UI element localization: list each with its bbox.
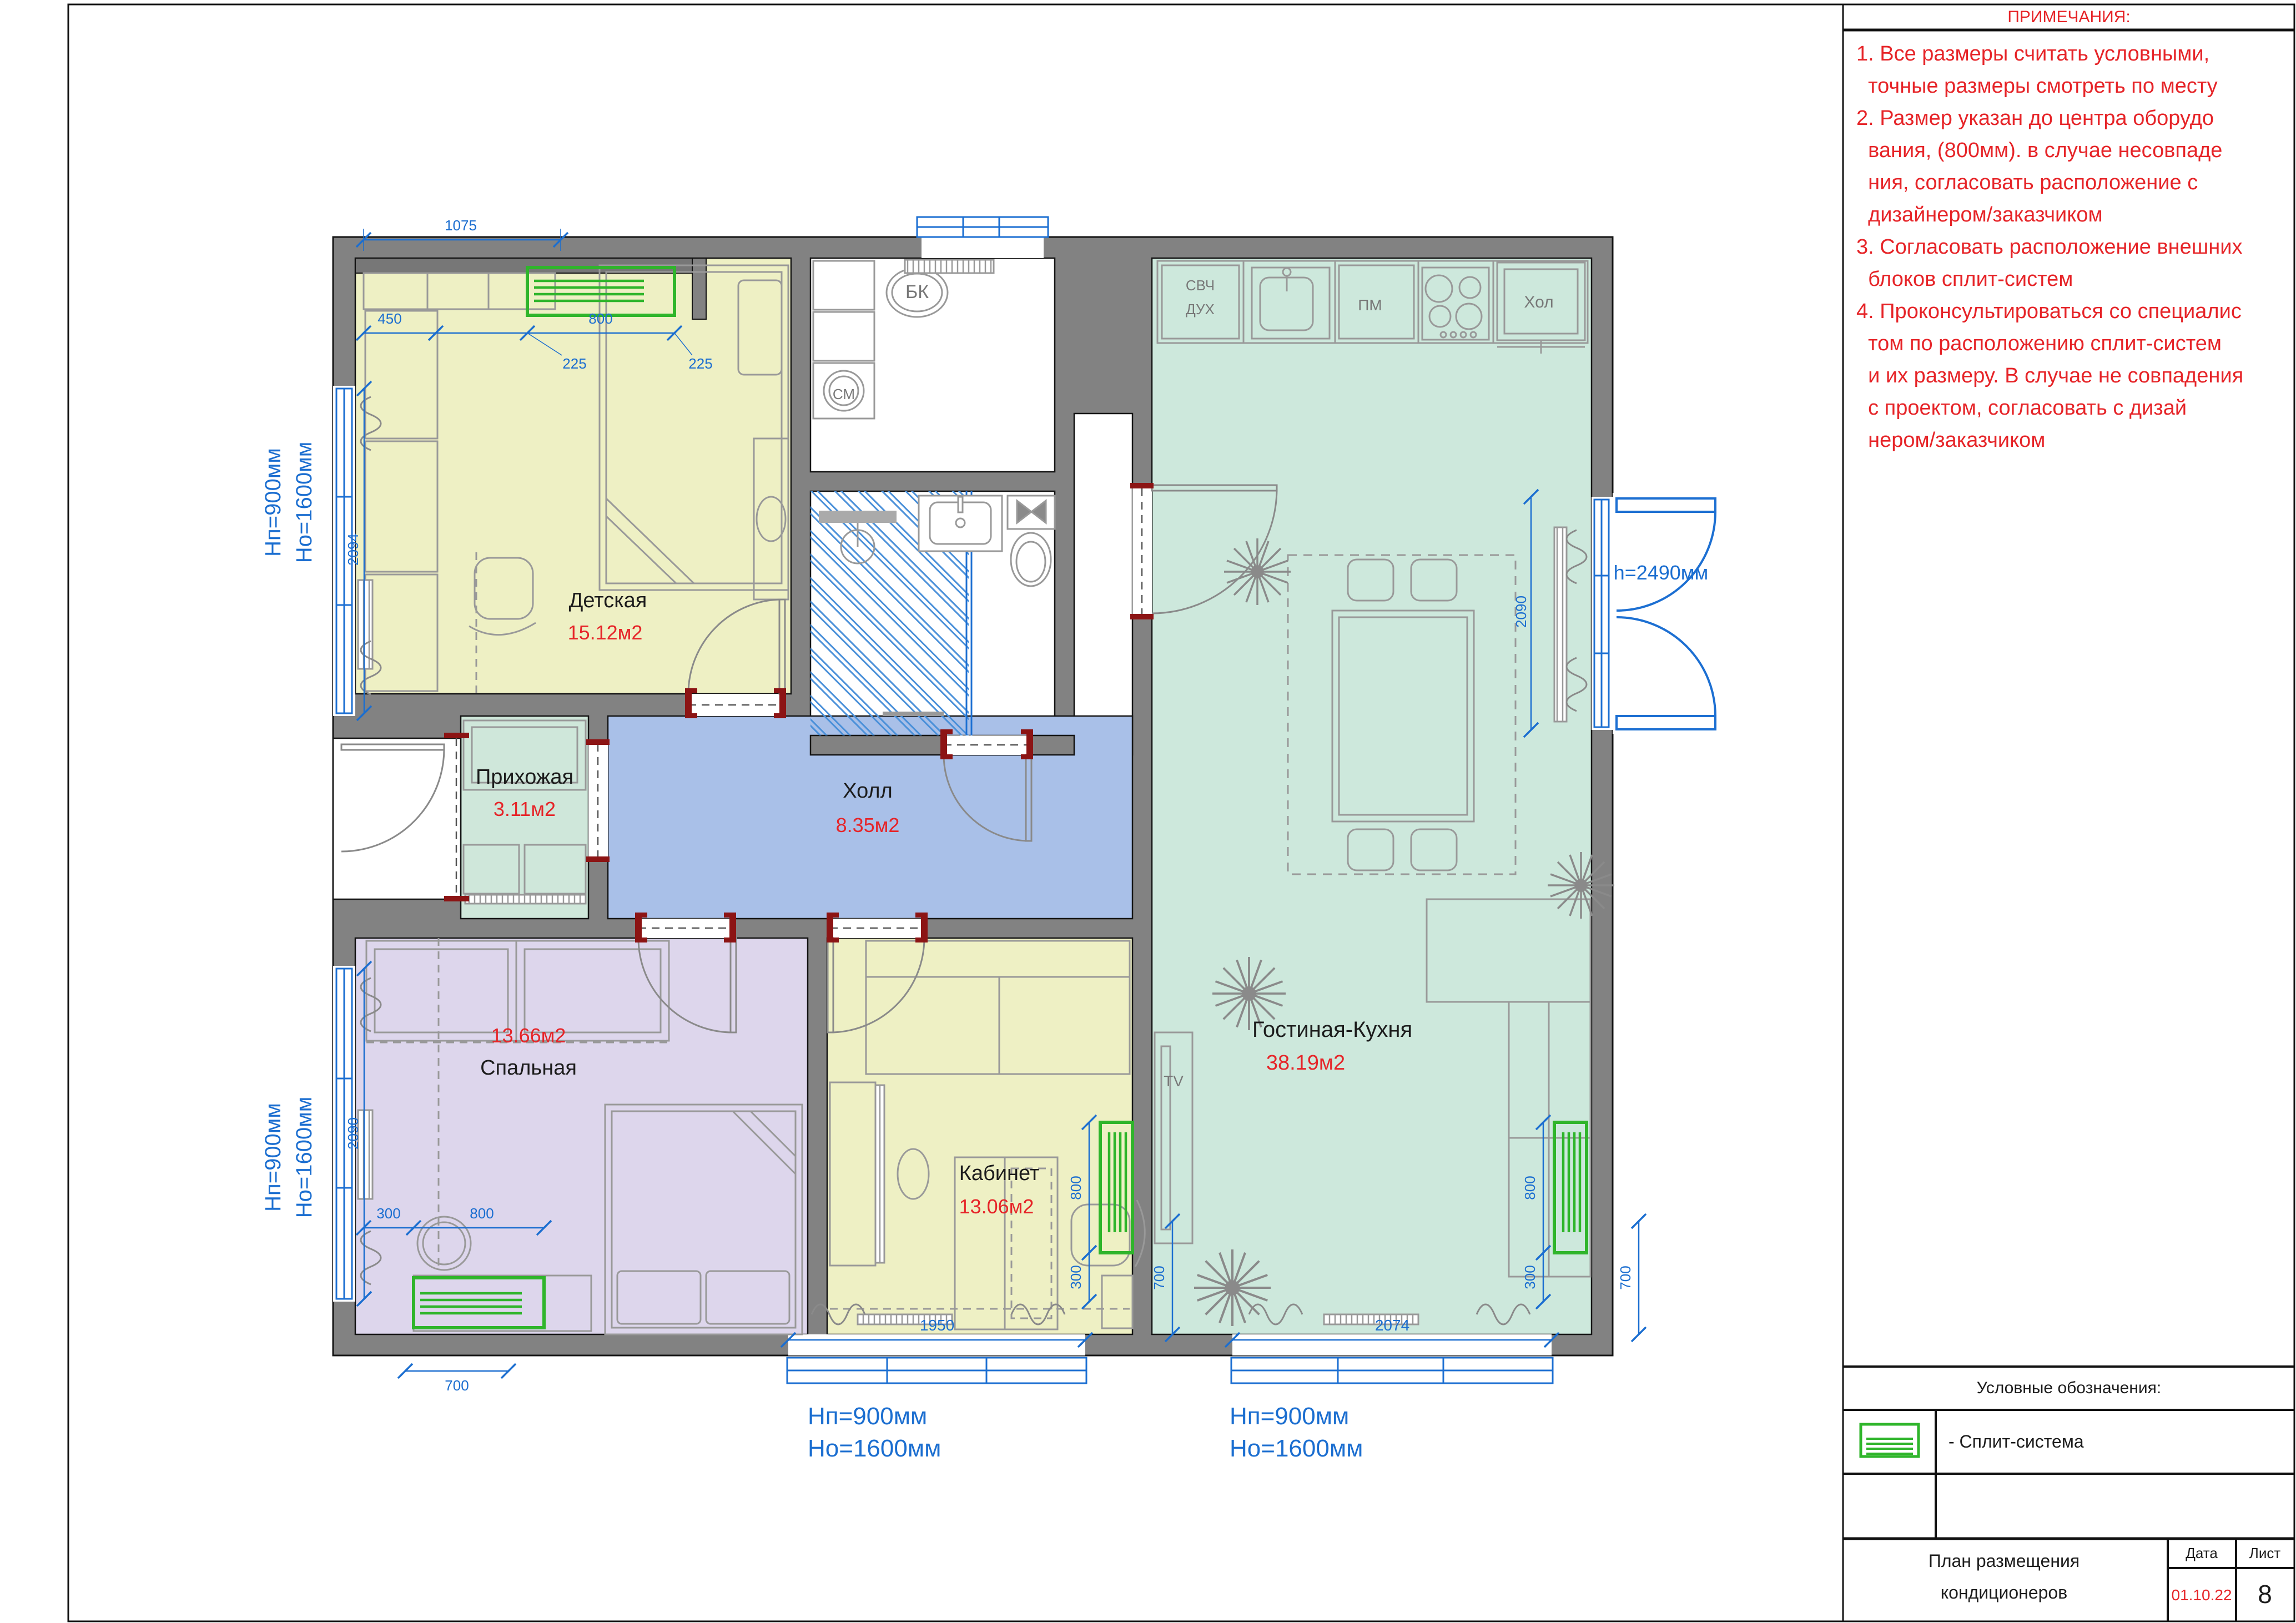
room-living: [1152, 258, 1592, 1334]
notes-list: 1. Все размеры считать условными, точные…: [1856, 38, 2292, 456]
note-line: вания, (800мм). в случае несовпаде: [1856, 134, 2292, 167]
date-label: Дата: [2186, 1546, 2218, 1560]
dim-800: 800: [588, 311, 612, 326]
drawing-sheet: Детская 15.12м2 Прихожая 3.11м2 Холл 8.3…: [0, 0, 2296, 1623]
vent-grille: [905, 260, 994, 273]
window-top: [917, 217, 1048, 237]
room-name-office: Кабинет: [959, 1163, 1040, 1184]
note-line: 4. Проконсультироваться со специалис: [1856, 295, 2292, 327]
sheet-label: Лист: [2249, 1546, 2281, 1560]
room-office: [827, 938, 1132, 1334]
window-height-bottom-left-ho: Hо=1600мм: [808, 1436, 941, 1461]
window-height-left-top-ho: Hо=1600мм: [293, 442, 315, 563]
dim-1075: 1075: [445, 218, 477, 233]
note-line: 3. Согласовать расположение внешних: [1856, 231, 2292, 263]
fridge-label: Хол: [1524, 294, 1553, 311]
towel-bar: [883, 712, 944, 716]
room-area-bedroom: 13.66м2: [491, 1026, 566, 1046]
dim-450: 450: [377, 311, 401, 326]
entry-recess: [333, 738, 461, 899]
room-name-hall: Холл: [843, 780, 893, 802]
dim-2074: 2074: [1375, 1318, 1409, 1333]
dim-bed-800: 800: [470, 1206, 494, 1221]
sheet-number: 8: [2258, 1581, 2272, 1607]
legend-split-system-icon: [1861, 1424, 1919, 1456]
window-height-bottom-left-hp: Hп=900мм: [808, 1404, 927, 1429]
dim-bed-300: 300: [376, 1206, 400, 1221]
room-corridor: [1074, 414, 1132, 755]
note-line: дизайнером/заказчиком: [1856, 199, 2292, 231]
dim-bed-700: 700: [445, 1378, 469, 1393]
window-balcony: [1594, 500, 1609, 727]
dim-2094: 2094: [346, 533, 360, 566]
room-area-children: 15.12м2: [568, 623, 643, 643]
window-bottom-left: [787, 1358, 1086, 1383]
room-name-living: Гостиная-Кухня: [1252, 1019, 1412, 1041]
room-name-entry: Прихожая: [476, 767, 573, 788]
room-name-children: Детская: [569, 590, 647, 611]
room-name-bedroom: Спальная: [480, 1057, 577, 1078]
window-bottom-right: [1231, 1358, 1553, 1383]
window-height-left-top-hp: Hп=900мм: [262, 448, 284, 557]
dim-balcony-height: h=2490мм: [1614, 563, 1709, 583]
note-line: нером/заказчиком: [1856, 424, 2292, 456]
note-line: с проектом, согласовать с дизай: [1856, 392, 2292, 424]
note-line: том по расположению сплит-систем: [1856, 327, 2292, 360]
sink: [919, 496, 1002, 551]
oven-label: ДУХ: [1186, 302, 1215, 316]
note-line: блоков сплит-систем: [1856, 263, 2292, 295]
dim-living-700: 700: [1618, 1266, 1633, 1289]
microwave-label: СВЧ: [1186, 278, 1215, 293]
dim-225-a: 225: [562, 356, 586, 371]
window-height-left-bottom-hp: Hп=900мм: [262, 1103, 284, 1212]
window-height-left-bottom-ho: Hо=1600мм: [293, 1097, 315, 1218]
notes-title: ПРИМЕЧАНИЯ:: [2007, 9, 2130, 26]
entry-grille: [465, 895, 586, 904]
room-area-hall: 8.35м2: [836, 815, 900, 835]
note-line: ния, согласовать расположение с: [1856, 167, 2292, 199]
boiler-label: БК: [905, 283, 929, 301]
dishwasher-label: ПМ: [1358, 298, 1382, 313]
washer-label: СМ: [833, 387, 855, 401]
drawing-title-line2: кондиционеров: [1941, 1584, 2067, 1601]
dim-balcony-2090: 2090: [1514, 596, 1528, 628]
legend-title: Условные обозначения:: [1977, 1380, 2161, 1397]
window-height-bottom-right-hp: Hп=900мм: [1230, 1404, 1349, 1429]
dim-office-300: 300: [1069, 1265, 1083, 1289]
drawing-title-line1: План размещения: [1929, 1552, 2080, 1570]
tv-label: TV: [1164, 1073, 1184, 1089]
note-line: точные размеры смотреть по месту: [1856, 70, 2292, 102]
room-area-living: 38.19м2: [1266, 1052, 1345, 1073]
room-area-entry: 3.11м2: [494, 799, 556, 819]
note-line: 1. Все размеры считать условными,: [1856, 38, 2292, 70]
note-line: и их размеру. В случае не совпадения: [1856, 360, 2292, 392]
shower-bar: [819, 511, 897, 523]
dim-1950: 1950: [920, 1318, 954, 1333]
dim-225-b: 225: [688, 356, 712, 371]
window-height-bottom-right-ho: Hо=1600мм: [1230, 1436, 1363, 1461]
blind: [1554, 527, 1567, 722]
dim-office-800: 800: [1069, 1176, 1083, 1199]
date-value: 01.10.22: [2172, 1587, 2232, 1603]
legend-item-split-system: - Сплит-система: [1948, 1433, 2084, 1450]
note-line: 2. Размер указан до центра оборудо: [1856, 102, 2292, 134]
dim-living-800: 800: [1523, 1176, 1537, 1199]
dim-2090-left: 2090: [346, 1117, 360, 1150]
room-area-office: 13.06м2: [959, 1197, 1034, 1217]
dim-living-300: 300: [1523, 1265, 1537, 1289]
dim-office-700: 700: [1152, 1266, 1166, 1289]
